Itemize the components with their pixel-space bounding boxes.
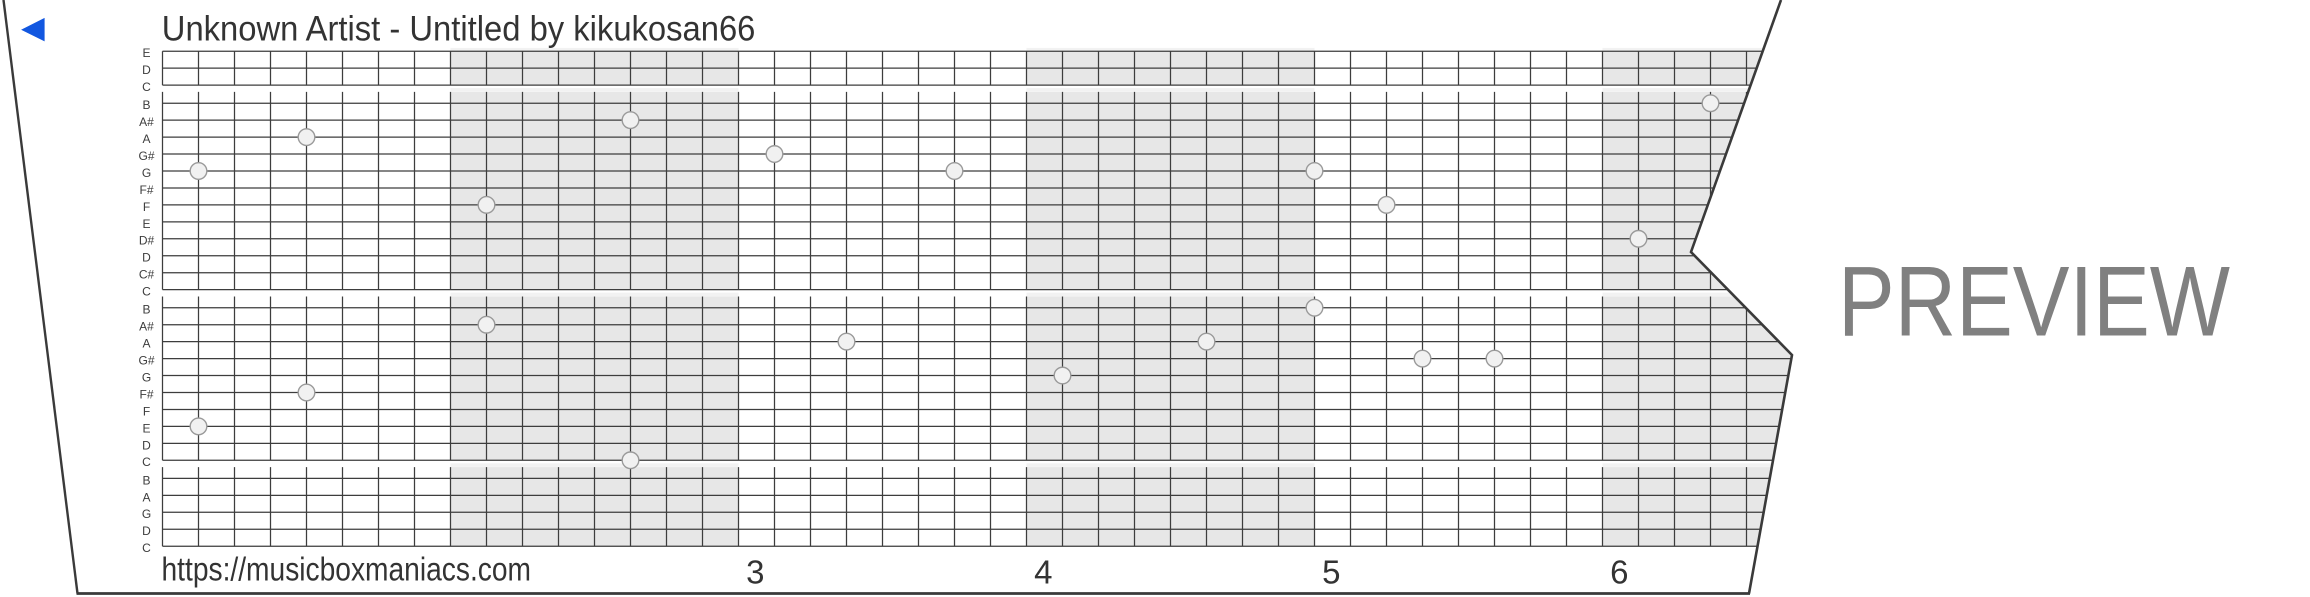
svg-text:D: D: [142, 251, 151, 265]
svg-text:A: A: [142, 132, 150, 146]
svg-text:B: B: [142, 473, 150, 487]
svg-text:6: 6: [1610, 553, 1628, 590]
svg-text:G: G: [142, 166, 151, 180]
svg-text:D: D: [142, 63, 151, 77]
svg-text:C: C: [142, 80, 151, 94]
svg-text:E: E: [142, 46, 150, 60]
svg-text:G: G: [142, 507, 151, 521]
svg-text:A: A: [142, 337, 150, 351]
svg-text:C: C: [142, 541, 151, 555]
svg-text:C#: C#: [139, 268, 155, 282]
svg-text:F#: F#: [139, 387, 153, 401]
svg-text:F: F: [143, 200, 150, 214]
svg-text:E: E: [142, 421, 150, 435]
svg-text:C: C: [142, 455, 151, 469]
svg-text:4: 4: [1034, 553, 1052, 590]
svg-text:G#: G#: [138, 149, 154, 163]
svg-text:F: F: [143, 404, 150, 418]
svg-text:D: D: [142, 524, 151, 538]
svg-text:https://musicboxmaniacs.com: https://musicboxmaniacs.com: [162, 551, 532, 588]
svg-text:G: G: [142, 370, 151, 384]
svg-text:A: A: [142, 490, 150, 504]
svg-text:E: E: [142, 217, 150, 231]
svg-text:A#: A#: [139, 115, 154, 129]
svg-text:A#: A#: [139, 320, 154, 334]
svg-text:3: 3: [746, 553, 764, 590]
svg-text:G#: G#: [138, 354, 154, 368]
svg-text:C: C: [142, 285, 151, 299]
svg-text:B: B: [142, 98, 150, 112]
svg-text:D#: D#: [139, 234, 155, 248]
svg-text:D: D: [142, 438, 151, 452]
svg-text:5: 5: [1322, 553, 1340, 590]
svg-text:PREVIEW: PREVIEW: [1838, 246, 2230, 357]
svg-text:B: B: [142, 303, 150, 317]
svg-text:F#: F#: [139, 183, 153, 197]
svg-text:Unknown Artist - Untitled by k: Unknown Artist - Untitled by kikukosan66: [162, 9, 756, 48]
